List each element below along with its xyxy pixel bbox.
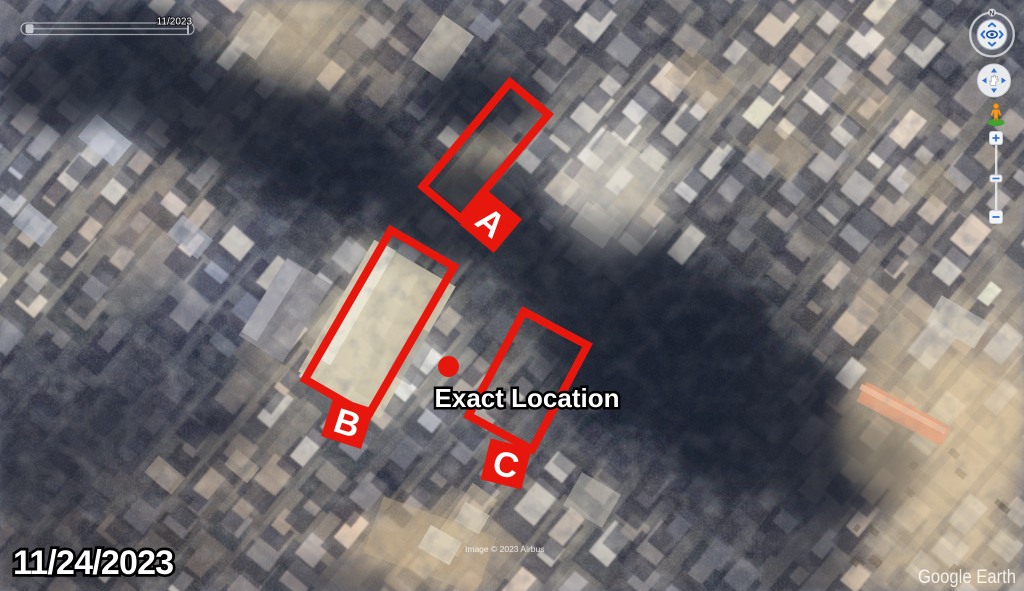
svg-text:Image © 2023 Airbus: Image © 2023 Airbus <box>465 544 545 554</box>
svg-text:Google Earth: Google Earth <box>918 566 1016 588</box>
svg-text:N: N <box>989 8 994 17</box>
svg-text:11/2023: 11/2023 <box>157 17 193 28</box>
